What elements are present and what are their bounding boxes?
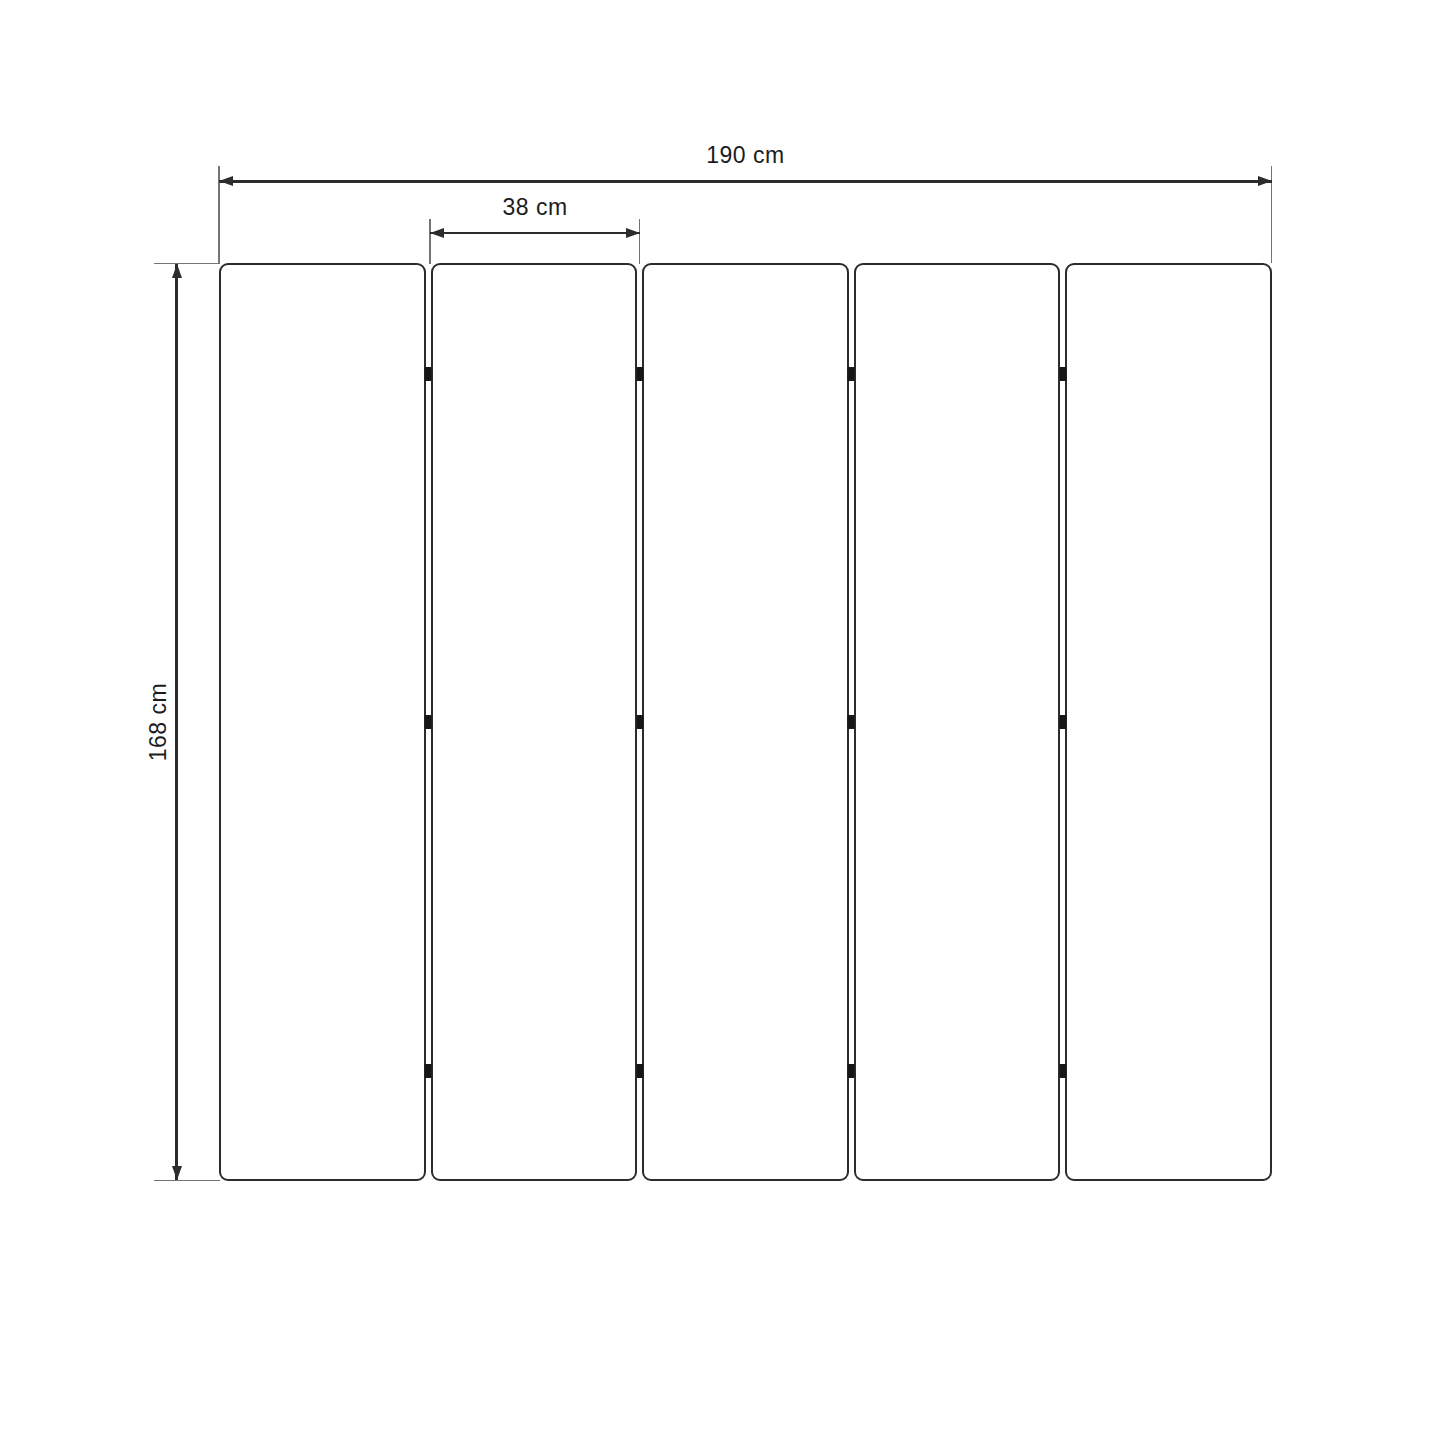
arrowhead-right-icon xyxy=(626,228,640,238)
total-width-label: 190 cm xyxy=(219,141,1272,169)
hinge xyxy=(425,1064,432,1078)
arrowhead-right-icon xyxy=(1258,176,1272,186)
arrowhead-down-icon xyxy=(172,1166,182,1180)
hinge xyxy=(1059,715,1066,729)
hinge xyxy=(425,367,432,381)
panel xyxy=(642,263,849,1181)
extension-line-height-top xyxy=(154,263,220,264)
panel xyxy=(1065,263,1272,1181)
extension-line-panel-left xyxy=(429,219,430,264)
hinge xyxy=(848,715,855,729)
total-width-dimension-line xyxy=(219,180,1272,183)
arrowhead-left-icon xyxy=(219,176,233,186)
arrowhead-left-icon xyxy=(430,228,444,238)
hinge xyxy=(1059,367,1066,381)
height-label: 168 cm xyxy=(144,683,172,761)
arrowhead-up-icon xyxy=(172,264,182,278)
hinge xyxy=(636,367,643,381)
height-dimension-line xyxy=(175,264,178,1180)
hinge xyxy=(636,715,643,729)
panel-group xyxy=(219,263,1272,1181)
hinge xyxy=(1059,1064,1066,1078)
hinge xyxy=(848,367,855,381)
extension-line-height-bottom xyxy=(154,1180,220,1181)
extension-line-panel-right xyxy=(639,219,640,264)
panel-width-dimension-line xyxy=(430,232,640,235)
panel xyxy=(219,263,426,1181)
hinge xyxy=(848,1064,855,1078)
hinge xyxy=(636,1064,643,1078)
panel xyxy=(431,263,638,1181)
panel xyxy=(854,263,1061,1181)
panel-width-label: 38 cm xyxy=(430,193,640,221)
hinge xyxy=(425,715,432,729)
dimension-diagram: 190 cm 38 cm 168 cm xyxy=(0,0,1445,1445)
